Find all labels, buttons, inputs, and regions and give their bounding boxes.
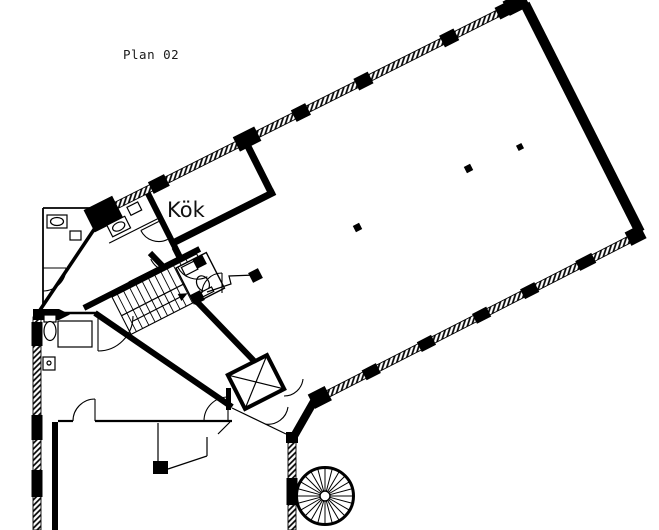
cabinet (58, 321, 92, 347)
wc-toilet (44, 322, 56, 341)
sink-unit (70, 231, 81, 240)
floor-plan-page: Plan 02 Kök (0, 0, 659, 530)
floor-plan-drawing: Plan 02 Kök (0, 0, 659, 530)
plan-title: Plan 02 (123, 47, 179, 62)
kitchen-label: Kök (167, 198, 206, 222)
spiral-staircase (297, 468, 354, 525)
inner-wall (52, 422, 58, 530)
window-wall-e-vertical (286, 432, 298, 530)
